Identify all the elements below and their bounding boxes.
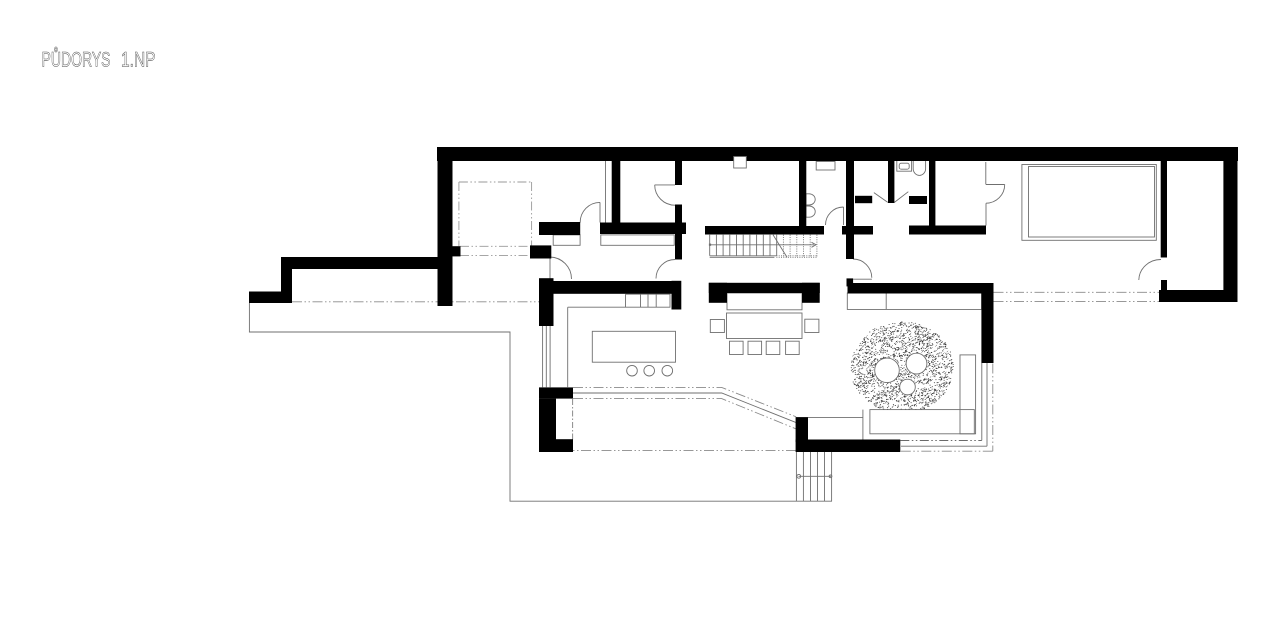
- svg-text:1.NP: 1.NP: [121, 49, 156, 72]
- svg-text:PŮDORYS: PŮDORYS: [42, 48, 111, 72]
